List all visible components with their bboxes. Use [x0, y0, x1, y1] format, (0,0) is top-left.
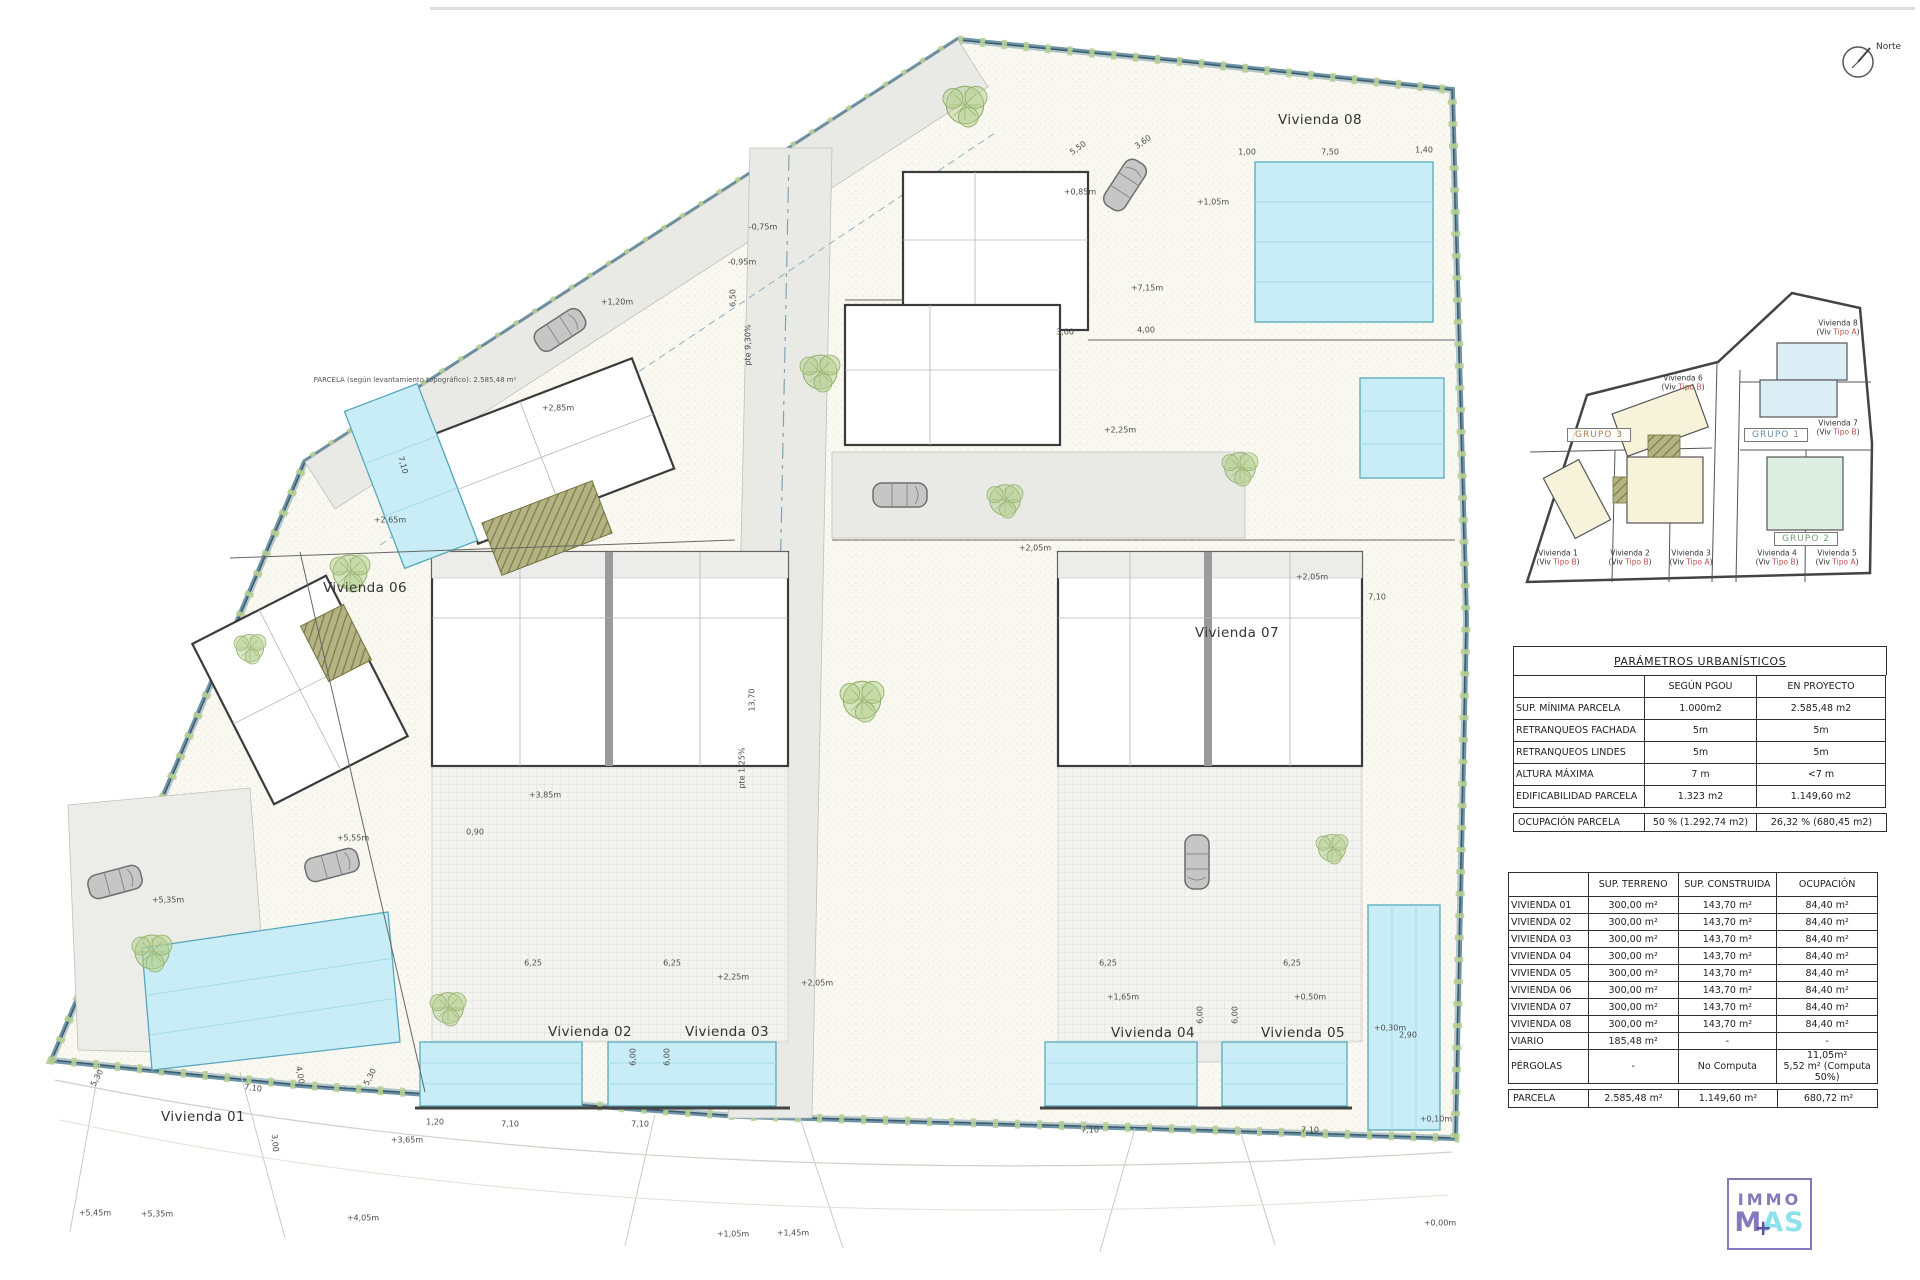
table-cell: 143,70 m²: [1678, 948, 1777, 965]
keyplan-group-label: GRUPO 3: [1567, 428, 1631, 442]
table-cell: 84,40 m²: [1777, 948, 1878, 965]
table-header-cell: SEGÚN PGOU: [1645, 676, 1757, 698]
plan-annotation: +5,35m: [141, 1210, 173, 1219]
plan-annotation: Vivienda 01: [161, 1109, 245, 1125]
table-header-cell: [1509, 873, 1589, 897]
plan-annotation: 3,00: [270, 1134, 281, 1153]
superficies-table-main: SUP. TERRENO SUP. CONSTRUIDA OCUPACIÓN V…: [1508, 872, 1878, 1084]
table-cell: 26,32 % (680,45 m2): [1757, 814, 1886, 831]
plan-annotation: 7,10: [501, 1120, 519, 1129]
plan-annotation: 0,90: [466, 828, 484, 837]
plan-annotation: +2,25m: [717, 973, 749, 982]
table-cell: No Computa: [1678, 1050, 1777, 1084]
table-cell: 143,70 m²: [1678, 914, 1777, 931]
table-cell: 300,00 m²: [1588, 982, 1678, 999]
plan-annotation: 1,00: [1238, 148, 1256, 157]
plan-annotation: 6,50: [729, 289, 738, 307]
table-header-cell: SUP. CONSTRUIDA: [1678, 873, 1777, 897]
table-row: VIVIENDA 07300,00 m²143,70 m²84,40 m²: [1509, 999, 1878, 1016]
keyplan-unit-label: Vivienda 1(Viv Tipo B): [1536, 549, 1579, 568]
table-header-row: SEGÚN PGOU EN PROYECTO: [1514, 676, 1886, 698]
plan-annotation: 7,10: [1368, 593, 1386, 602]
plan-annotation: +1,45m: [777, 1229, 809, 1238]
plan-annotation: +4,05m: [347, 1214, 379, 1223]
table-header-cell: OCUPACIÓN: [1777, 873, 1878, 897]
parametros-table: SEGÚN PGOU EN PROYECTO SUP. MÍNIMA PARCE…: [1513, 675, 1886, 808]
plan-annotation: +2,05m: [1019, 544, 1051, 553]
plan-annotation: Vivienda 02: [548, 1024, 632, 1040]
plan-annotation: +3,65m: [391, 1136, 423, 1145]
table-cell: <7 m: [1757, 764, 1886, 786]
table-row: VIVIENDA 08300,00 m²143,70 m²84,40 m²: [1509, 1016, 1878, 1033]
plan-annotation: Vivienda 08: [1278, 112, 1362, 128]
table-cell: 143,70 m²: [1678, 965, 1777, 982]
plan-annotation: -0,95m: [728, 258, 757, 267]
table-cell: VIVIENDA 07: [1509, 999, 1589, 1016]
table-cell: 84,40 m²: [1777, 965, 1878, 982]
table-cell: 2.585,48 m2: [1757, 698, 1886, 720]
table-cell: 185,48 m²: [1588, 1033, 1678, 1050]
keyplan-group-label: GRUPO 1: [1744, 428, 1808, 442]
table-cell: 300,00 m²: [1588, 914, 1678, 931]
table-cell: 143,70 m²: [1678, 982, 1777, 999]
plan-annotation: Vivienda 03: [685, 1024, 769, 1040]
plan-annotation: +0,10m: [1420, 1115, 1452, 1124]
plan-annotation: 6,00: [663, 1048, 672, 1066]
plan-annotation: 4,00: [1137, 326, 1155, 335]
keyplan-unit-label: Vivienda 3(Viv Tipo A): [1669, 549, 1712, 568]
table-cell: PÉRGOLAS: [1509, 1050, 1589, 1084]
table-cell: RETRANQUEOS FACHADA: [1514, 720, 1645, 742]
plan-annotation: +2,65m: [374, 516, 406, 525]
plan-annotation: 1,20: [426, 1118, 444, 1127]
table-cell: VIVIENDA 08: [1509, 1016, 1589, 1033]
table-row: PÉRGOLAS-No Computa11,05m² 5,52 m² (Comp…: [1509, 1050, 1878, 1084]
table-cell: 84,40 m²: [1777, 931, 1878, 948]
plan-annotation: 6,25: [663, 959, 681, 968]
immomas-logo: IMMO MAS +: [1727, 1178, 1812, 1250]
table-header-row: SUP. TERRENO SUP. CONSTRUIDA OCUPACIÓN: [1509, 873, 1878, 897]
table-cell: SUP. MÍNIMA PARCELA: [1514, 698, 1645, 720]
plan-annotation: 7,10: [1081, 1126, 1099, 1135]
plan-annotation: Vivienda 04: [1111, 1025, 1195, 1041]
table-cell: 5m: [1645, 720, 1757, 742]
keyplan-house-2-3: [1627, 457, 1703, 523]
table-row: VIVIENDA 05300,00 m²143,70 m²84,40 m²: [1509, 965, 1878, 982]
table-header-cell: [1514, 676, 1645, 698]
plan-annotation: +2,05m: [1296, 573, 1328, 582]
house-vivienda-04-05: [1058, 552, 1362, 766]
keyplan-house-7: [1760, 380, 1837, 417]
table-row: RETRANQUEOS LINDES5m5m: [1514, 742, 1886, 764]
plan-annotation: +1,05m: [1197, 198, 1229, 207]
plan-annotation: 7,10: [631, 1120, 649, 1129]
ocupacion-parcela-row: OCUPACIÓN PARCELA 50 % (1.292,74 m2) 26,…: [1513, 813, 1887, 832]
table-cell: ALTURA MÁXIMA: [1514, 764, 1645, 786]
table-cell: 2.585,48 m²: [1589, 1090, 1679, 1107]
logo-line1: IMMO: [1738, 1192, 1801, 1208]
table-cell: RETRANQUEOS LINDES: [1514, 742, 1645, 764]
table-cell: 84,40 m²: [1777, 982, 1878, 999]
table-cell: 5m: [1645, 742, 1757, 764]
keyplan-unit-label: Vivienda 2(Viv Tipo B): [1608, 549, 1651, 568]
plan-annotation: 6,25: [1099, 959, 1117, 968]
table-cell: VIVIENDA 02: [1509, 914, 1589, 931]
table-cell: 50 % (1.292,74 m2): [1645, 814, 1757, 831]
site-plan-sheet: Vivienda 01Vivienda 02Vivienda 03Viviend…: [0, 0, 1920, 1280]
table-cell: -: [1678, 1033, 1777, 1050]
table-row: EDIFICABILIDAD PARCELA1.323 m21.149,60 m…: [1514, 786, 1886, 808]
superficies-table: SUP. TERRENO SUP. CONSTRUIDA OCUPACIÓN V…: [1508, 872, 1878, 1108]
parcela-total-row: PARCELA 2.585,48 m² 1.149,60 m² 680,72 m…: [1508, 1089, 1878, 1108]
table-cell: 84,40 m²: [1777, 999, 1878, 1016]
table-cell: VIARIO: [1509, 1033, 1589, 1050]
table-cell: 300,00 m²: [1588, 948, 1678, 965]
table-cell: 300,00 m²: [1588, 931, 1678, 948]
table-cell: PARCELA: [1509, 1090, 1589, 1107]
table-cell: -: [1588, 1050, 1678, 1084]
table-cell: 5m: [1757, 742, 1886, 764]
table-row: VIARIO185,48 m²--: [1509, 1033, 1878, 1050]
table-cell: VIVIENDA 01: [1509, 897, 1589, 914]
plan-annotation: Vivienda 07: [1195, 625, 1279, 641]
plan-annotation: 2,90: [1399, 1031, 1417, 1040]
table-cell: 84,40 m²: [1777, 897, 1878, 914]
table-cell: OCUPACIÓN PARCELA: [1514, 814, 1645, 831]
north-label: Norte: [1876, 42, 1901, 52]
plan-annotation: 6,00: [1231, 1006, 1240, 1024]
plan-annotation: +1,20m: [601, 298, 633, 307]
plan-annotation: +0,85m: [1064, 188, 1096, 197]
plan-annotation: Vivienda 05: [1261, 1025, 1345, 1041]
north-arrow-icon: [1843, 47, 1873, 77]
table-cell: -: [1777, 1033, 1878, 1050]
table-row: VIVIENDA 04300,00 m²143,70 m²84,40 m²: [1509, 948, 1878, 965]
plan-annotation: pte 9,30%: [744, 324, 753, 365]
table-cell: 84,40 m²: [1777, 1016, 1878, 1033]
plan-annotation: +5,55m: [337, 834, 369, 843]
table-cell: 300,00 m²: [1588, 897, 1678, 914]
table-row: ALTURA MÁXIMA7 m<7 m: [1514, 764, 1886, 786]
table-row: VIVIENDA 01300,00 m²143,70 m²84,40 m²: [1509, 897, 1878, 914]
plan-annotation: +1,05m: [717, 1230, 749, 1239]
table-row: VIVIENDA 02300,00 m²143,70 m²84,40 m²: [1509, 914, 1878, 931]
table-cell: VIVIENDA 04: [1509, 948, 1589, 965]
plan-annotation: Vivienda 06: [323, 580, 407, 596]
table-cell: 11,05m² 5,52 m² (Computa 50%): [1777, 1050, 1878, 1084]
parametros-urbanisticos-table: PARÁMETROS URBANÍSTICOS SEGÚN PGOU EN PR…: [1513, 646, 1887, 832]
keyplan-unit-label: Vivienda 8(Viv Tipo A): [1816, 319, 1859, 338]
table-cell: 1.323 m2: [1645, 786, 1757, 808]
plan-annotation: +2,25m: [1104, 426, 1136, 435]
table-title: PARÁMETROS URBANÍSTICOS: [1513, 646, 1887, 675]
plan-annotation: 7,10: [1301, 1126, 1319, 1135]
table-row: VIVIENDA 06300,00 m²143,70 m²84,40 m²: [1509, 982, 1878, 999]
plan-annotation: -0,75m: [749, 223, 778, 232]
plan-annotation: 13,70: [748, 689, 757, 712]
logo-letter-s: S: [1784, 1207, 1804, 1238]
plan-annotation: +5,45m: [79, 1209, 111, 1218]
plan-annotation: +2,05m: [801, 979, 833, 988]
plan-annotation: +0,00m: [1424, 1219, 1456, 1228]
table-cell: 300,00 m²: [1588, 965, 1678, 982]
table-cell: 1.149,60 m2: [1757, 786, 1886, 808]
plan-annotation: 3,00: [1056, 328, 1074, 337]
keyplan-unit-label: Vivienda 6(Viv Tipo B): [1661, 374, 1704, 393]
table-cell: 84,40 m²: [1777, 914, 1878, 931]
keyplan-unit-label: Vivienda 7(Viv Tipo B): [1816, 419, 1859, 438]
plan-annotation: 7,50: [1321, 148, 1339, 157]
table-row: SUP. MÍNIMA PARCELA1.000m22.585,48 m2: [1514, 698, 1886, 720]
keyplan-house-8: [1777, 343, 1847, 380]
table-row: RETRANQUEOS FACHADA5m5m: [1514, 720, 1886, 742]
plan-annotation: 6,25: [524, 959, 542, 968]
keyplan-unit-label: Vivienda 5(Viv Tipo A): [1815, 549, 1858, 568]
plan-annotation: pte 1,25%: [738, 747, 747, 788]
plan-annotation: +2,85m: [542, 404, 574, 413]
table-cell: VIVIENDA 05: [1509, 965, 1589, 982]
keyplan-group-label: GRUPO 2: [1774, 532, 1838, 546]
table-cell: 7 m: [1645, 764, 1757, 786]
plan-annotation: +7,15m: [1131, 284, 1163, 293]
table-header-cell: SUP. TERRENO: [1588, 873, 1678, 897]
table-cell: 1.149,60 m²: [1679, 1090, 1778, 1107]
keyplan-unit-label: Vivienda 4(Viv Tipo B): [1755, 549, 1798, 568]
house-vivienda-07: [845, 305, 1060, 445]
table-cell: EDIFICABILIDAD PARCELA: [1514, 786, 1645, 808]
table-cell: 680,72 m²: [1778, 1090, 1879, 1107]
logo-plus-icon: +: [1754, 1218, 1773, 1239]
plan-annotation: +1,65m: [1107, 993, 1139, 1002]
plan-annotation: 6,00: [1196, 1006, 1205, 1024]
plan-annotation: 1,40: [1415, 146, 1433, 155]
table-cell: 5m: [1757, 720, 1886, 742]
plan-annotation: +0,50m: [1294, 993, 1326, 1002]
keyplan-house-4-5: [1767, 457, 1843, 530]
table-cell: 1.000m2: [1645, 698, 1757, 720]
table-cell: 143,70 m²: [1678, 1016, 1777, 1033]
table-cell: 143,70 m²: [1678, 999, 1777, 1016]
plan-annotation: PARCELA (según levantamiento topográfico…: [314, 376, 517, 384]
plan-annotation: 6,25: [1283, 959, 1301, 968]
table-cell: 143,70 m²: [1678, 931, 1777, 948]
logo-line2: MAS +: [1734, 1209, 1804, 1236]
table-cell: 143,70 m²: [1678, 897, 1777, 914]
keyplan-pergola: [1648, 435, 1680, 457]
table-cell: VIVIENDA 06: [1509, 982, 1589, 999]
house-vivienda-02-03: [432, 552, 788, 766]
table-header-cell: EN PROYECTO: [1757, 676, 1886, 698]
plan-annotation: +5,35m: [152, 896, 184, 905]
plan-annotation: 6,00: [629, 1048, 638, 1066]
table-row: VIVIENDA 03300,00 m²143,70 m²84,40 m²: [1509, 931, 1878, 948]
table-cell: VIVIENDA 03: [1509, 931, 1589, 948]
plan-annotation: +3,85m: [529, 791, 561, 800]
table-cell: 300,00 m²: [1588, 999, 1678, 1016]
keyplan-pergola: [1613, 477, 1627, 503]
table-cell: 300,00 m²: [1588, 1016, 1678, 1033]
